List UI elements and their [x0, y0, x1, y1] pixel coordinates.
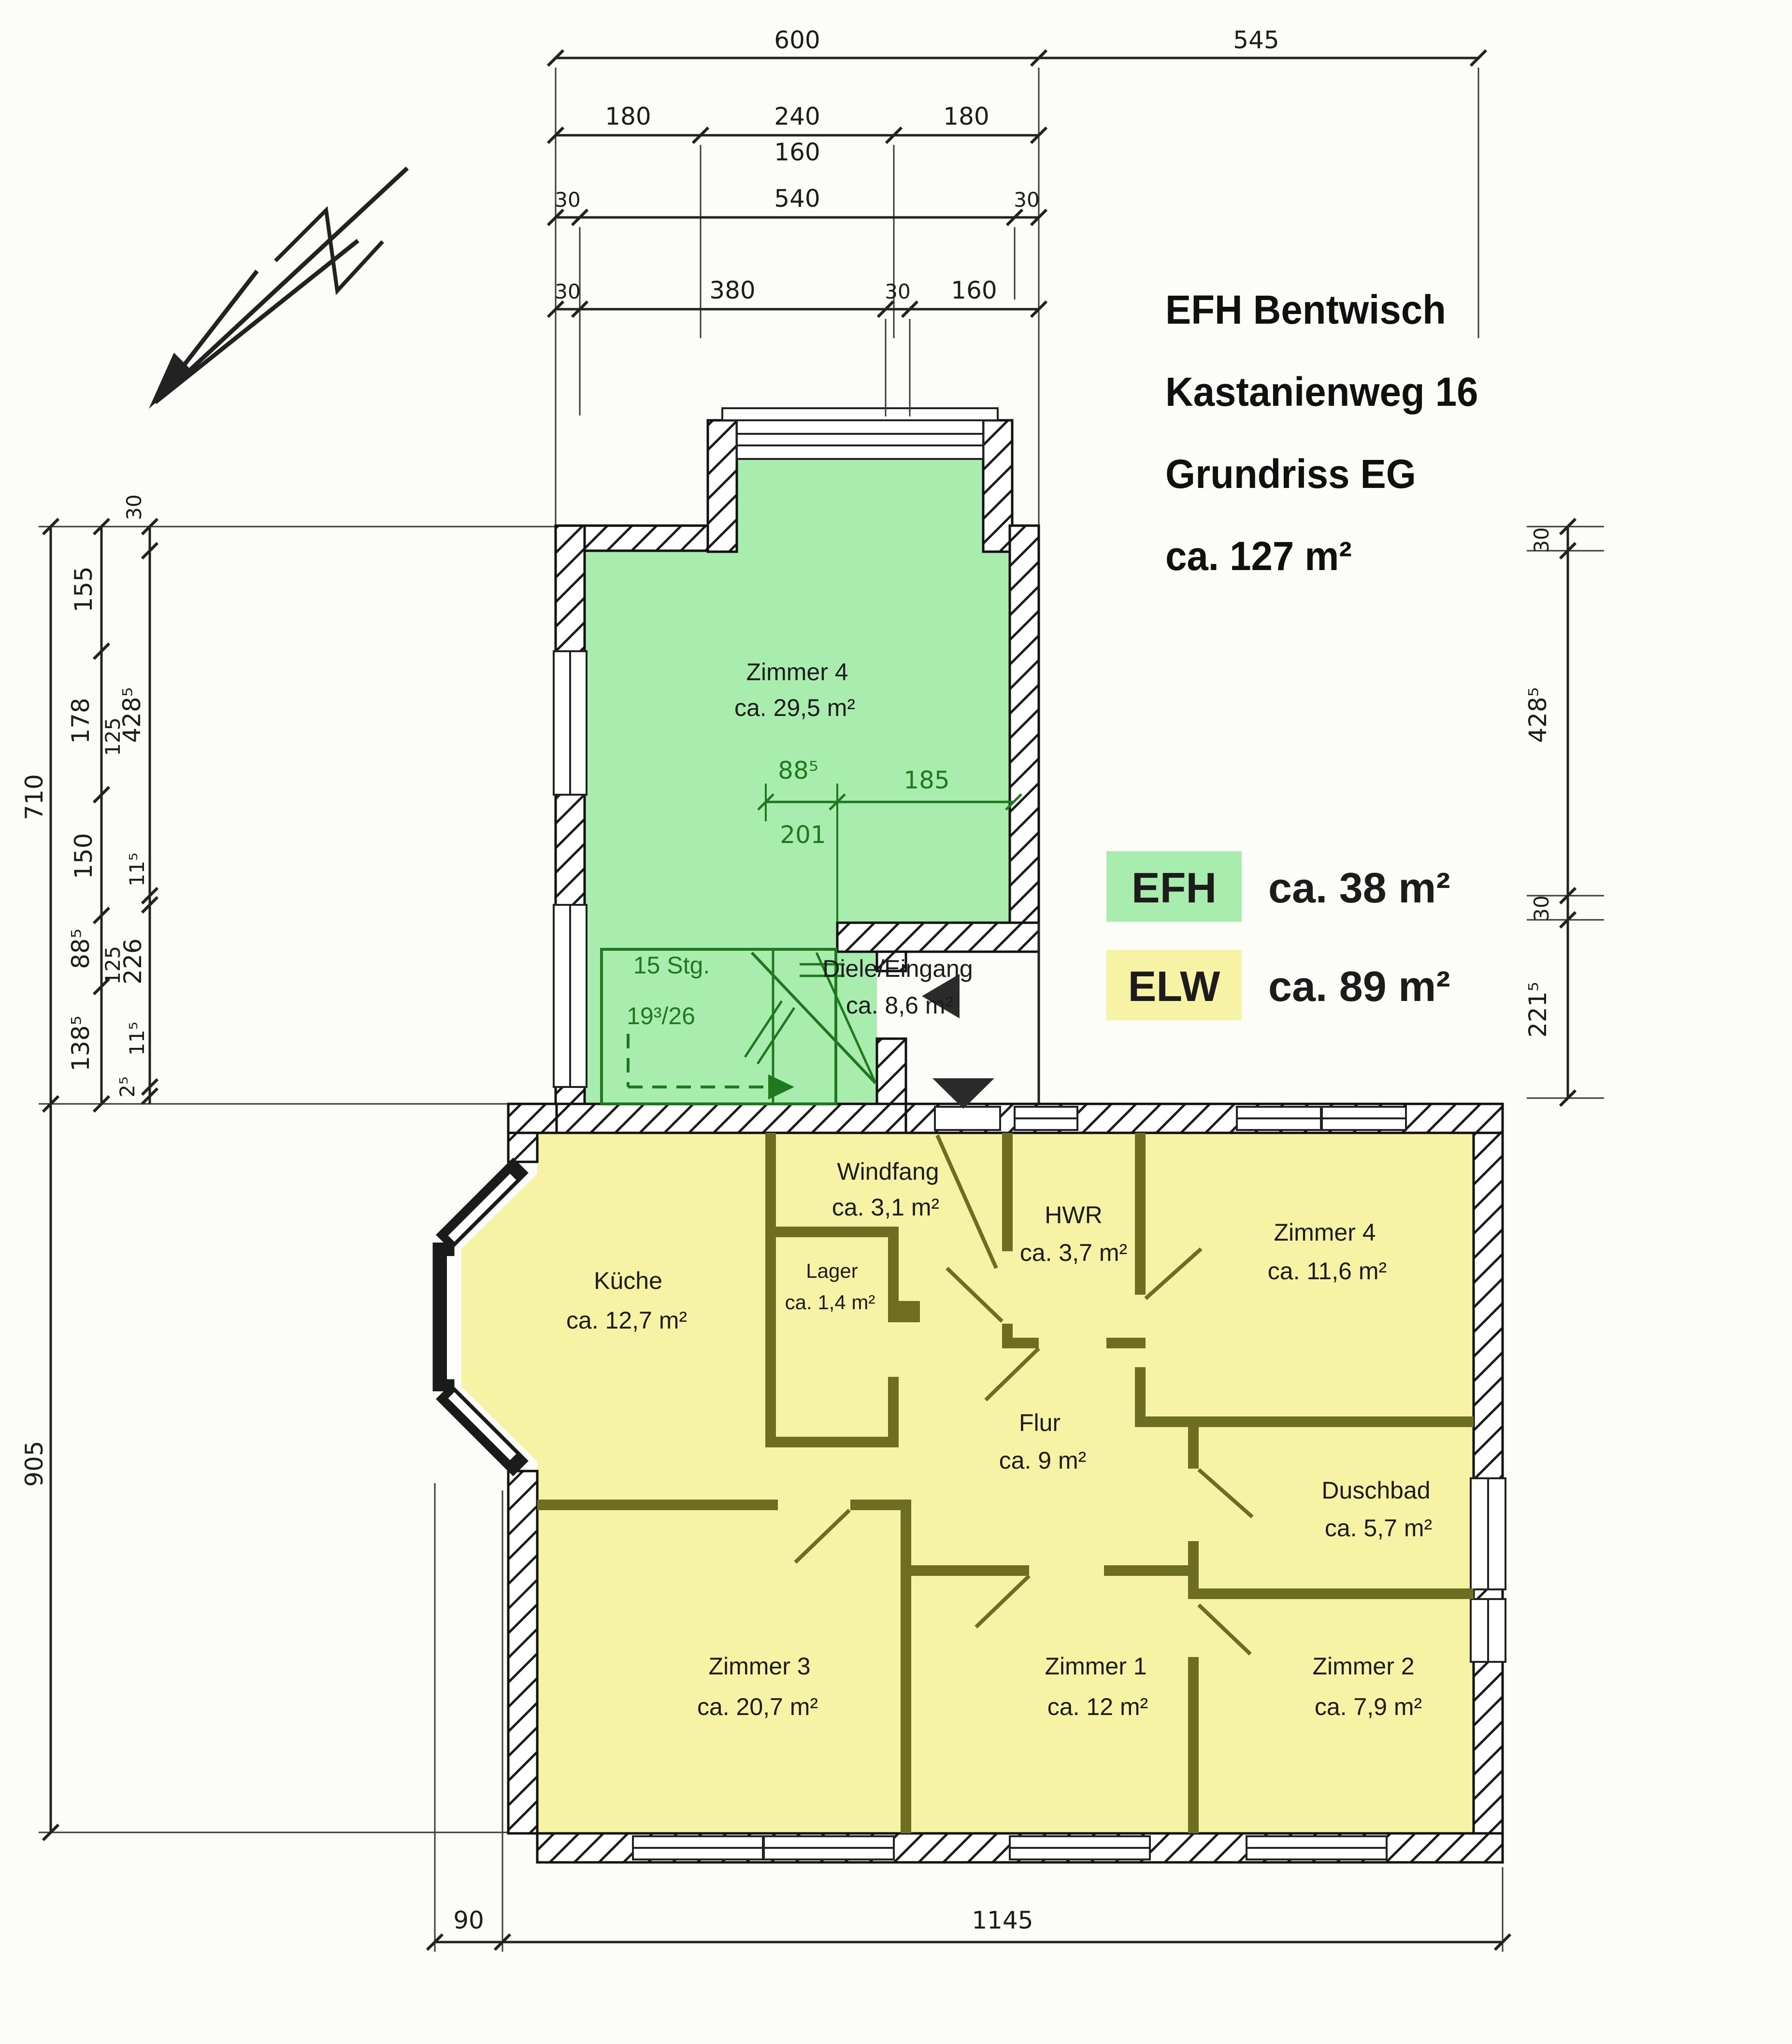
dim-top-30a: 30 [555, 188, 580, 212]
room-area-kueche: ca. 12,7 m² [566, 1307, 687, 1334]
title-address: Kastanienweg 16 [1165, 351, 1478, 433]
room-label-windfang: Windfang [837, 1158, 939, 1185]
room-area-zimmer3: ca. 20,7 m² [697, 1693, 818, 1720]
dim-left-4285: 428⁵ [118, 687, 146, 743]
room-label-zimmer1: Zimmer 1 [1045, 1653, 1147, 1680]
dim-left-150: 150 [70, 833, 98, 879]
room-label-zimmer4: Zimmer 4 [1274, 1219, 1376, 1246]
title-drawing-name: Grundriss EG [1165, 433, 1478, 515]
dim-top-540: 540 [774, 185, 820, 213]
dim-top-600: 600 [774, 26, 820, 54]
legend-efh-area: ca. 38 m² [1268, 864, 1450, 912]
room-area-flur: ca. 9 m² [999, 1447, 1087, 1474]
room-area-lager: ca. 1,4 m² [785, 1291, 875, 1314]
room-label-zimmer4-og: Zimmer 4 [746, 658, 848, 686]
floorplan-drawing: 88⁵ 201 185 [0, 0, 1792, 2044]
dim-left-885: 88⁵ [67, 929, 95, 969]
title-project: EFH Bentwisch [1165, 269, 1478, 351]
dim-top-30b: 30 [1014, 188, 1039, 212]
stairs-count-label: 15 Stg. [633, 952, 710, 979]
dim-left-115b: 11⁵ [125, 1022, 149, 1056]
room-label-duschbad: Duschbad [1321, 1477, 1430, 1504]
dim-top-180b: 180 [943, 102, 989, 130]
dim-left-30: 30 [122, 494, 146, 520]
dim-right-2215: 221⁵ [1524, 982, 1552, 1037]
title-total-area: ca. 127 m² [1165, 515, 1478, 597]
room-area-zimmer1: ca. 12 m² [1047, 1693, 1148, 1720]
dim-left-115a: 11⁵ [125, 853, 149, 886]
dim-interior-885: 88⁵ [778, 757, 818, 785]
room-area-hwr: ca. 3,7 m² [1020, 1239, 1127, 1266]
dim-top-160b: 160 [951, 276, 997, 304]
room-label-zimmer3: Zimmer 3 [708, 1653, 810, 1680]
dim-interior-201: 201 [780, 821, 826, 849]
dim-interior-185: 185 [903, 766, 949, 794]
room-area-diele: ca. 8,6 m² [846, 992, 953, 1019]
dim-right-4285: 428⁵ [1524, 687, 1552, 743]
dim-left-178: 178 [67, 698, 95, 743]
floorplan-page: 88⁵ 201 185 [0, 0, 1792, 2044]
dim-top-160a: 160 [774, 138, 820, 166]
dim-left-226: 226 [119, 938, 147, 984]
room-label-zimmer2: Zimmer 2 [1312, 1653, 1414, 1680]
stairs-ratio-label: 19³/26 [627, 1002, 695, 1029]
dim-bottom-90: 90 [453, 1906, 484, 1934]
dim-top-30d: 30 [885, 280, 910, 303]
room-label-diele: Diele/Eingang [822, 955, 973, 982]
dim-top-545: 545 [1233, 26, 1279, 54]
dim-left-905: 905 [20, 1441, 48, 1487]
room-label-flur: Flur [1019, 1409, 1061, 1436]
legend: EFH ca. 38 m² ELW ca. 89 m² [1106, 851, 1450, 1020]
room-area-duschbad: ca. 5,7 m² [1325, 1515, 1432, 1542]
legend-elw-area: ca. 89 m² [1268, 962, 1450, 1010]
dim-right-30b: 30 [1530, 895, 1553, 921]
room-label-lager: Lager [806, 1259, 858, 1282]
room-area-zimmer2: ca. 7,9 m² [1315, 1693, 1422, 1720]
north-arrow-icon [149, 168, 407, 409]
dim-top-240: 240 [774, 102, 820, 130]
title-block: EFH Bentwisch Kastanienweg 16 Grundriss … [1165, 269, 1495, 597]
dim-right-30a: 30 [1530, 527, 1553, 553]
dim-bottom-1145: 1145 [972, 1906, 1033, 1934]
dim-left-710: 710 [20, 774, 48, 820]
room-label-hwr: HWR [1045, 1201, 1102, 1229]
room-area-zimmer4: ca. 11,6 m² [1268, 1258, 1387, 1285]
dim-top-180a: 180 [605, 102, 651, 130]
dim-top-380: 380 [709, 276, 755, 304]
legend-efh-label: EFH [1132, 864, 1217, 912]
room-label-kueche: Küche [594, 1267, 662, 1294]
legend-elw-label: ELW [1128, 962, 1220, 1010]
room-area-windfang: ca. 3,1 m² [832, 1194, 939, 1221]
dim-top-30c: 30 [555, 280, 580, 303]
room-area-zimmer4-og: ca. 29,5 m² [734, 694, 855, 721]
dim-left-25: 2⁵ [115, 1076, 139, 1098]
dim-left-1385: 138⁵ [67, 1015, 95, 1071]
dim-left-155: 155 [70, 566, 98, 612]
